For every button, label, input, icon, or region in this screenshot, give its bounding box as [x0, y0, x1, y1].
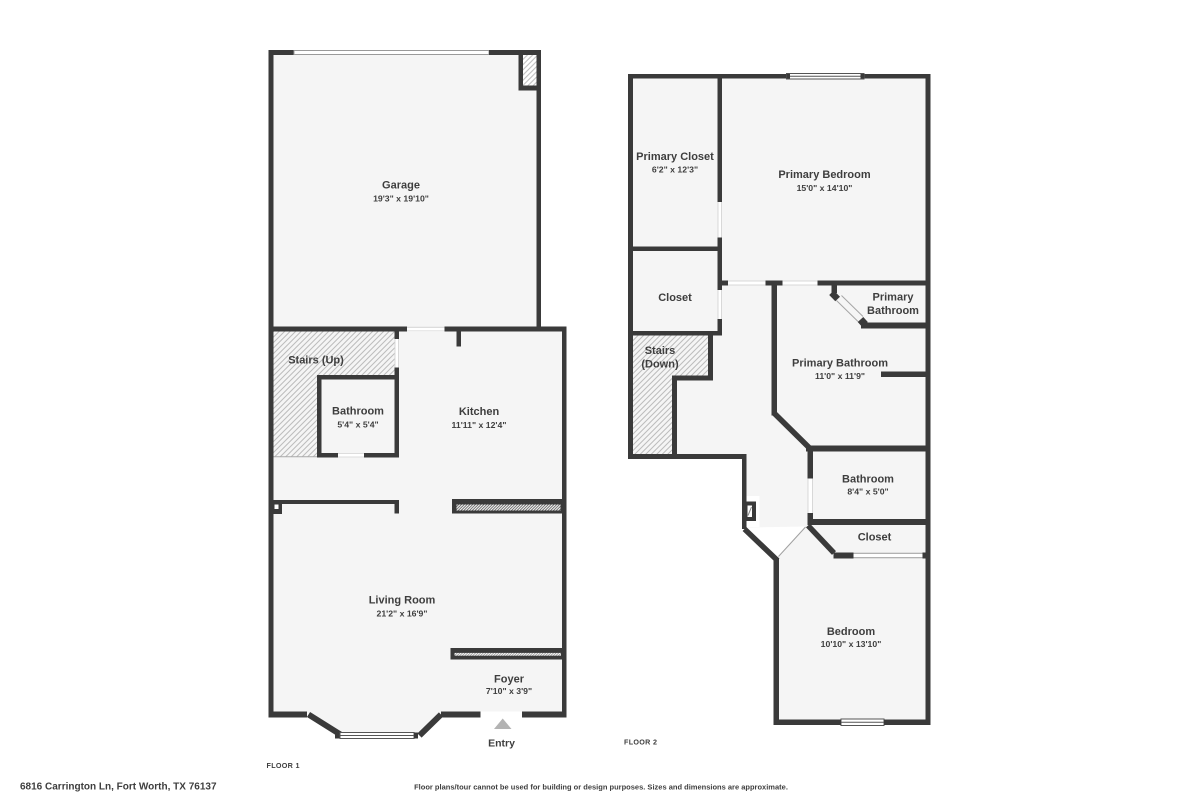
svg-text:Bathroom: Bathroom	[867, 305, 919, 317]
svg-text:5'4" x 5'4": 5'4" x 5'4"	[337, 420, 378, 430]
svg-text:6'2" x 12'3": 6'2" x 12'3"	[652, 165, 698, 175]
svg-text:6816 Carrington Ln, Fort Worth: 6816 Carrington Ln, Fort Worth, TX 76137	[20, 782, 217, 793]
svg-text:Stairs: Stairs	[645, 345, 676, 357]
svg-text:Foyer: Foyer	[494, 674, 525, 686]
svg-text:Stairs (Up): Stairs (Up)	[288, 355, 344, 367]
svg-text:21'2" x 16'9": 21'2" x 16'9"	[376, 609, 427, 619]
svg-text:Closet: Closet	[858, 532, 892, 544]
svg-text:Bathroom: Bathroom	[332, 406, 384, 418]
svg-text:11'11" x 12'4": 11'11" x 12'4"	[452, 420, 507, 430]
svg-text:Living Room: Living Room	[369, 595, 436, 607]
svg-text:Kitchen: Kitchen	[459, 406, 500, 418]
svg-text:Primary Bathroom: Primary Bathroom	[792, 358, 888, 370]
svg-text:Primary: Primary	[873, 292, 915, 304]
svg-text:(Down): (Down)	[641, 359, 679, 371]
svg-text:Bedroom: Bedroom	[827, 626, 876, 638]
svg-text:Floor plans/tour cannot be use: Floor plans/tour cannot be used for buil…	[414, 782, 788, 791]
svg-text:8'4" x 5'0": 8'4" x 5'0"	[847, 487, 888, 497]
svg-text:11'0" x 11'9": 11'0" x 11'9"	[815, 371, 865, 381]
svg-text:Closet: Closet	[658, 292, 692, 304]
svg-text:FLOOR 1: FLOOR 1	[267, 761, 300, 770]
svg-text:Garage: Garage	[382, 180, 420, 192]
svg-text:7'10" x 3'9": 7'10" x 3'9"	[486, 686, 532, 696]
svg-text:15'0" x 14'10": 15'0" x 14'10"	[797, 183, 853, 193]
svg-text:Primary Bedroom: Primary Bedroom	[778, 169, 871, 181]
svg-text:Primary Closet: Primary Closet	[636, 151, 714, 163]
svg-text:19'3" x 19'10": 19'3" x 19'10"	[373, 194, 429, 204]
svg-text:10'10" x 13'10": 10'10" x 13'10"	[821, 639, 882, 649]
svg-text:Entry: Entry	[488, 738, 515, 750]
svg-text:Bathroom: Bathroom	[842, 474, 894, 486]
svg-text:FLOOR 2: FLOOR 2	[624, 738, 657, 747]
